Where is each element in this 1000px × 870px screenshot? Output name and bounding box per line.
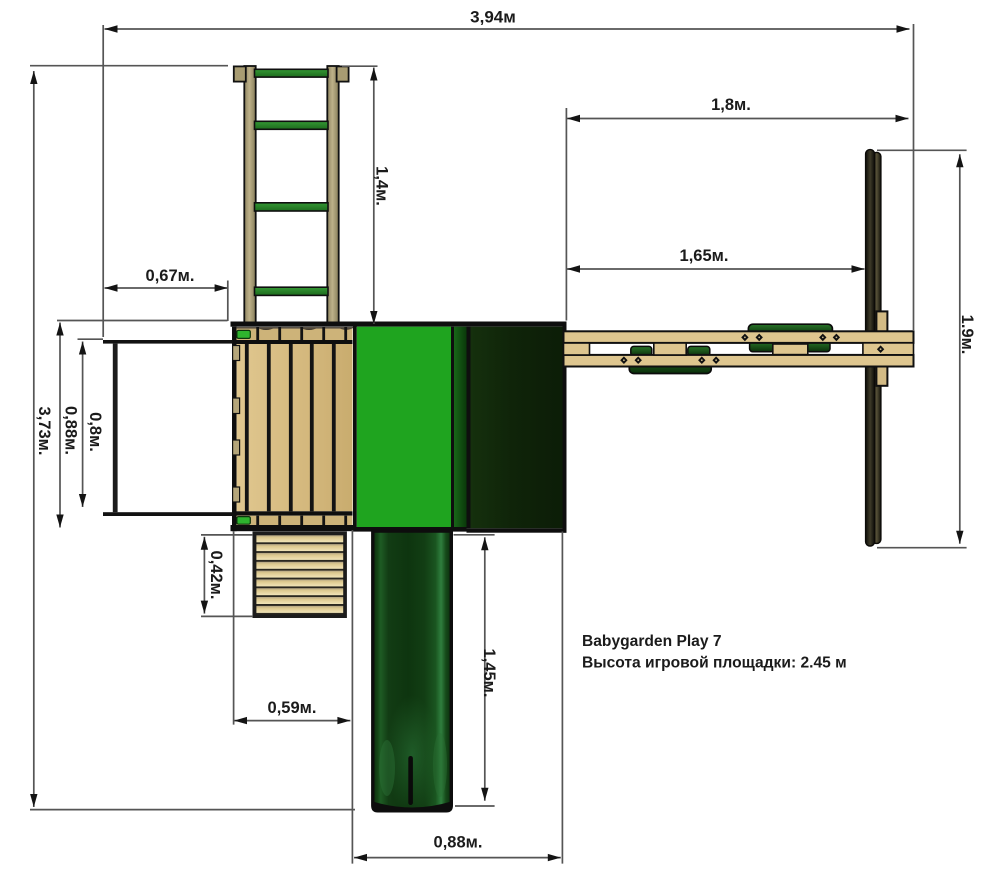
svg-text:3,94м: 3,94м [470,8,516,27]
svg-text:Высота игровой площадки: 2.45: Высота игровой площадки: 2.45 м [582,655,847,672]
svg-text:0,8м.: 0,8м. [86,412,104,452]
svg-text:1,4м.: 1,4м. [373,166,391,206]
svg-text:0,42м.: 0,42м. [207,551,225,600]
svg-text:1.9м.: 1.9м. [958,315,976,355]
svg-text:3,73м.: 3,73м. [35,407,53,456]
svg-text:Babygarden Play 7: Babygarden Play 7 [582,633,722,650]
svg-text:1,8м.: 1,8м. [711,96,751,114]
svg-text:0,67м.: 0,67м. [146,267,195,285]
svg-text:1,65м.: 1,65м. [680,247,729,265]
svg-text:0,88м.: 0,88м. [434,834,483,852]
svg-text:0,59м.: 0,59м. [268,699,317,717]
svg-text:0,88м.: 0,88м. [62,406,80,455]
svg-text:1,45м.: 1,45м. [480,649,498,698]
